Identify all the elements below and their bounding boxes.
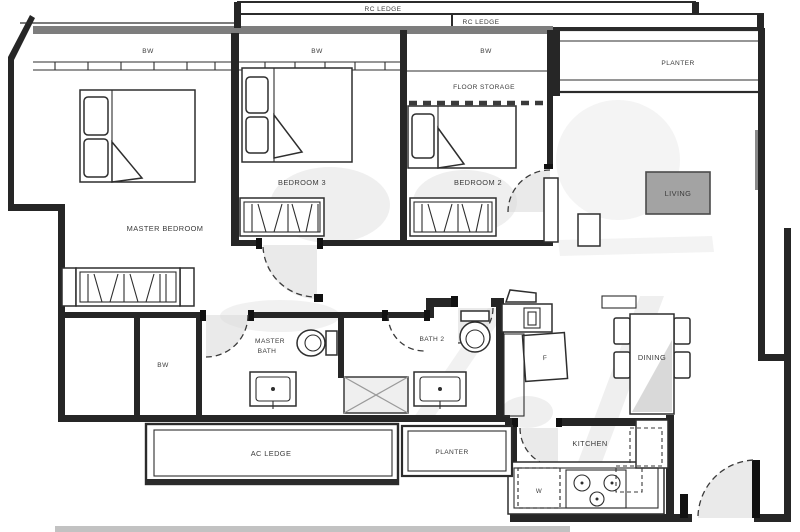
bw-label-bedroom2: BW	[480, 48, 492, 55]
planter-top-label: PLANTER	[661, 60, 694, 67]
bath2-toilet	[460, 311, 490, 352]
entrance-jamb	[680, 494, 688, 518]
master-bath-vanity	[250, 372, 296, 409]
bedroom3-label: BEDROOM 3	[278, 178, 326, 187]
tv-console	[544, 178, 558, 242]
kitchen-cabinet-upper	[502, 290, 552, 332]
bath2-label: BATH 2	[420, 336, 445, 343]
shower	[344, 377, 408, 413]
planter-top-right	[552, 30, 763, 92]
armchair	[578, 214, 600, 246]
bedroom3-wardrobe	[240, 198, 324, 236]
floorplan: F W	[0, 0, 800, 532]
master-bath-label-line2: BATH	[258, 348, 277, 355]
fridge-label: F	[543, 355, 548, 362]
fridge: F	[522, 333, 567, 382]
ac-ledge-label: AC LEDGE	[251, 449, 292, 458]
bw-label-left: BW	[157, 362, 169, 369]
bw-label-master: BW	[142, 48, 154, 55]
bw-label-bedroom3: BW	[311, 48, 323, 55]
washer-label: W	[536, 488, 542, 495]
top-window-bar	[33, 26, 553, 34]
master-bedroom-label: MASTER BEDROOM	[127, 224, 204, 233]
dining-label: DINING	[638, 353, 666, 362]
master-bath-label-line1: MASTER	[255, 338, 285, 345]
master-wardrobe	[62, 268, 194, 306]
master-bath-toilet	[297, 330, 337, 356]
bath2-vanity	[414, 372, 466, 409]
bedroom2-wardrobe	[410, 198, 496, 236]
bedroom3-bed	[242, 68, 352, 162]
rc-ledge-label-2: RC LEDGE	[463, 19, 500, 26]
rc-ledge-top	[238, 2, 763, 28]
planter-bottom-label: PLANTER	[435, 449, 468, 456]
living-label: LIVING	[665, 189, 692, 198]
master-bed	[80, 90, 195, 182]
bedroom2-bed	[408, 106, 516, 168]
floor-storage-label: FLOOR STORAGE	[453, 84, 515, 91]
bath2-shower-door-arc	[388, 315, 424, 351]
entrance-door-leaf	[752, 460, 760, 518]
kitchen-label: KITCHEN	[572, 439, 607, 448]
rc-ledge-label-1: RC LEDGE	[365, 6, 402, 13]
floorplan-drawing: F W	[0, 0, 800, 532]
bedroom2-label: BEDROOM 2	[454, 178, 502, 187]
